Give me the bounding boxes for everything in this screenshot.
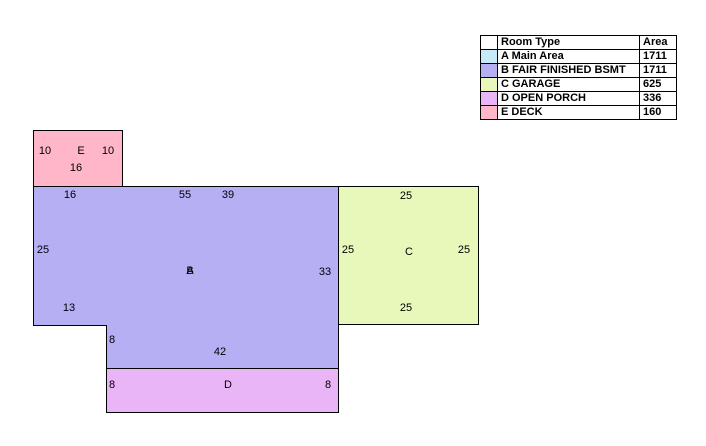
- legend-row-a: A Main Area 1711: [481, 50, 677, 64]
- legend-room-e: E DECK: [498, 106, 640, 120]
- room-e-shape: [34, 131, 123, 187]
- legend-swatch-a: [481, 50, 498, 64]
- legend-room-c: C GARAGE: [498, 78, 640, 92]
- room-d-shape: [107, 369, 339, 413]
- legend-row-e: E DECK 160: [481, 106, 677, 120]
- legend-header-swatch-cell: [481, 36, 498, 50]
- dim-c-bottom: 25: [400, 302, 412, 314]
- sketch-page: 10 E 10 16 16 55 39 25 A B 33 13 8 42 25…: [0, 0, 706, 446]
- legend-area-d: 336: [640, 92, 677, 106]
- dim-b-top-right: 39: [222, 189, 234, 201]
- dim-e-left: 10: [39, 145, 51, 157]
- dim-b-left: 25: [37, 244, 49, 256]
- legend-room-b: B FAIR FINISHED BSMT: [498, 64, 640, 78]
- room-b-shape: [34, 187, 339, 369]
- legend-area-a: 1711: [640, 50, 677, 64]
- legend-swatch-d: [481, 92, 498, 106]
- room-label-b: B: [186, 265, 193, 277]
- dim-b-top-left: 16: [64, 189, 76, 201]
- legend-area-b: 1711: [640, 64, 677, 78]
- room-label-e: E: [77, 145, 84, 157]
- dim-d-left: 8: [109, 379, 115, 391]
- legend-room-a: A Main Area: [498, 50, 640, 64]
- dim-c-left: 25: [342, 244, 354, 256]
- dim-c-top: 25: [400, 190, 412, 202]
- legend-area-c: 625: [640, 78, 677, 92]
- legend-row-b: B FAIR FINISHED BSMT 1711: [481, 64, 677, 78]
- room-label-c: C: [405, 246, 413, 258]
- dim-b-top-mid: 55: [179, 189, 191, 201]
- legend-area-e: 160: [640, 106, 677, 120]
- dim-e-bottom: 16: [70, 162, 82, 174]
- dim-d-right: 8: [325, 379, 331, 391]
- dim-b-ext-left: 8: [109, 334, 115, 346]
- dim-c-right: 25: [458, 244, 470, 256]
- dim-b-bottom-left: 13: [63, 302, 75, 314]
- dim-b-ext-bottom: 42: [214, 346, 226, 358]
- legend-header-row: Room Type Area: [481, 36, 677, 50]
- legend-swatch-b: [481, 64, 498, 78]
- room-label-d: D: [224, 379, 232, 391]
- legend-row-d: D OPEN PORCH 336: [481, 92, 677, 106]
- dim-b-right: 33: [319, 266, 331, 278]
- legend-row-c: C GARAGE 625: [481, 78, 677, 92]
- legend-swatch-e: [481, 106, 498, 120]
- legend-header-room-type: Room Type: [498, 36, 640, 50]
- legend-swatch-c: [481, 78, 498, 92]
- legend-room-d: D OPEN PORCH: [498, 92, 640, 106]
- legend-header-area: Area: [640, 36, 677, 50]
- dim-e-right: 10: [102, 145, 114, 157]
- room-legend-table: Room Type Area A Main Area 1711 B FAIR F…: [480, 35, 677, 120]
